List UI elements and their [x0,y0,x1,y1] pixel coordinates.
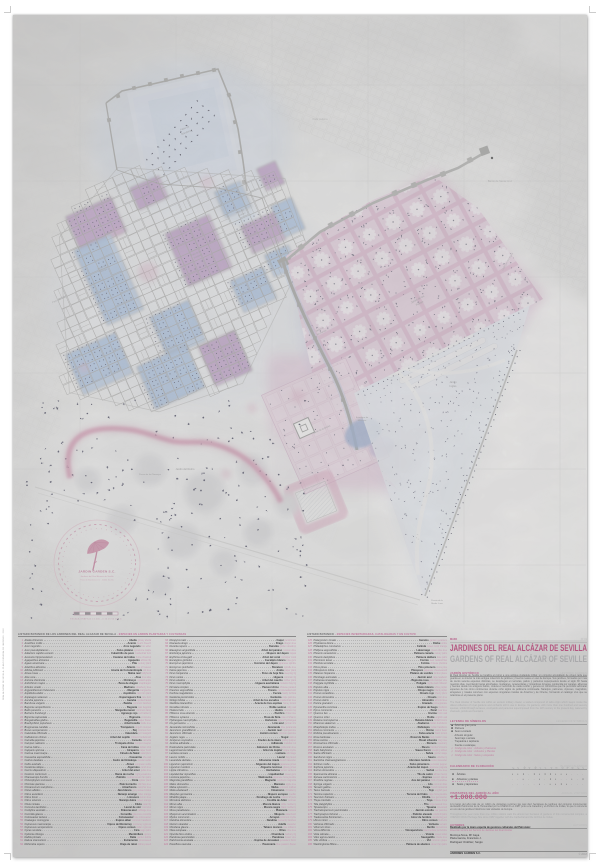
svg-text:Mercurio: Mercurio [358,419,367,422]
svg-text:Patio de Banderas s/n · 41004: Patio de Banderas s/n · 41004 Sevilla [80,579,114,582]
svg-text:Paseo de los Naranjos: Paseo de los Naranjos [139,473,162,476]
svg-text:Puerta de la: Puerta de la [431,599,444,602]
svg-text:Jardines del Real Alcazar de S: Jardines del Real Alcazar de Sevilla [80,575,114,578]
svg-text:ESCALA GRAFICA 1:2.000 - 0 10: ESCALA GRAFICA 1:2.000 - 0 10 25 50 100 … [70,618,122,621]
svg-text:Barrio de Santa Cruz: Barrio de Santa Cruz [488,179,513,183]
svg-text:JARDINES DEL REAL ALCÁZAR DE S: JARDINES DEL REAL ALCÁZAR DE SEVILLA [450,643,587,654]
svg-text:Calle Judeira: Calle Judeira [312,117,328,121]
svg-text:GARDENS OF REAL ALCÁZAR OF SEV: GARDENS OF REAL ALCÁZAR OF SEVILLE [450,654,587,665]
svg-text:Media Luna: Media Luna [431,603,443,605]
svg-text:Jardin del Retiro: Jardin del Retiro [176,467,195,471]
svg-text:Estanque de: Estanque de [356,416,369,419]
svg-text:Ingles: Ingles [450,384,458,388]
svg-text:JARDIN GARDEN S.C.: JARDIN GARDEN S.C. [78,570,115,574]
svg-text:Jardin: Jardin [449,380,457,384]
